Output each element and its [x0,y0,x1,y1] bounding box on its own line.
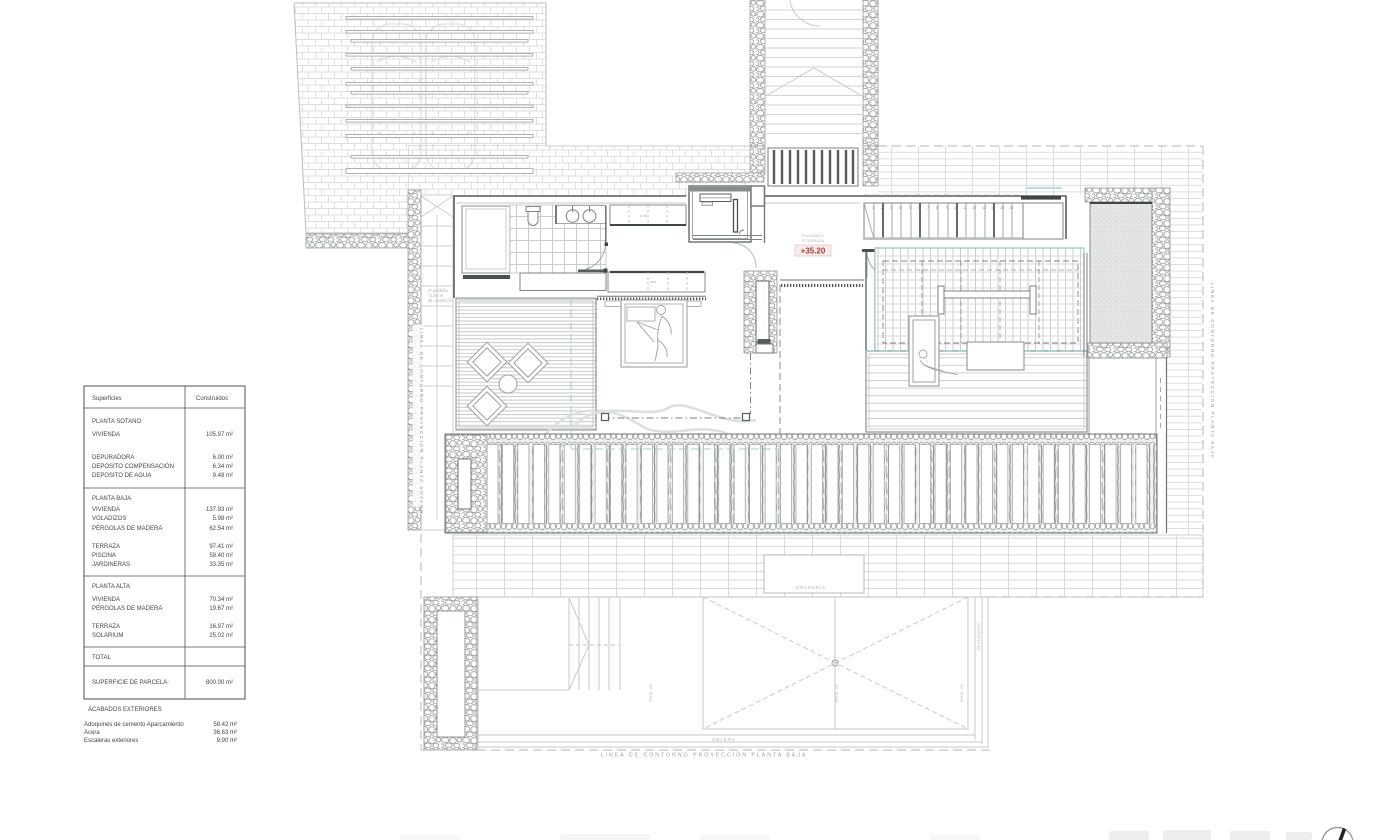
svg-text:LINEA DE CONTORNO PROYECCIÓN P: LINEA DE CONTORNO PROYECCIÓN PLANTA SOTA… [419,328,425,515]
svg-text:1: 1 [872,206,874,210]
svg-text:PÉRGOLAS DE MADERA: PÉRGOLAS DE MADERA [92,605,162,612]
svg-text:DEPURADORA: DEPURADORA [92,455,134,461]
svg-text:LINEA DE CONTORNO PROYECCIÓN P: LINEA DE CONTORNO PROYECCIÓN PLANTA BAJA [601,752,808,759]
svg-text:6.34 m²: 6.34 m² [213,464,233,470]
svg-text:PÉRGOLAS DE MADERA: PÉRGOLAS DE MADERA [92,525,162,532]
svg-text:Acera: Acera [84,730,100,736]
svg-text:9.90 m²: 9.90 m² [217,738,237,744]
svg-text:JARDINERAS: JARDINERAS [92,562,130,568]
svg-text:11: 11 [963,206,967,210]
svg-text:arm.: arm. [650,280,657,284]
svg-text:+35.20: +35.20 [801,247,826,256]
svg-text:VIVIENDA: VIVIENDA [92,432,120,438]
svg-text:VOLADIZOS: VOLADIZOS [92,516,126,522]
svg-text:5.98 m²: 5.98 m² [213,516,233,522]
svg-text:33.35 m²: 33.35 m² [209,562,233,568]
svg-text:RETRANQUEO: RETRANQUEO [977,623,981,650]
svg-text:137.93 m²: 137.93 m² [206,507,233,513]
svg-text:S.TERRAZA: S.TERRAZA [802,238,824,243]
svg-text:19.67 m²: 19.67 m² [209,606,233,612]
svg-text:Superficies: Superficies [92,396,122,402]
svg-text:105.97 m²: 105.97 m² [206,432,233,438]
svg-text:alt. 11x23 cm: alt. 11x23 cm [428,298,453,303]
svg-text:97.41 m²: 97.41 m² [209,544,233,550]
svg-text:36.63 m²: 36.63 m² [213,730,237,736]
svg-text:59.40 m²: 59.40 m² [209,553,233,559]
svg-text:TERRAZA: TERRAZA [92,624,120,630]
svg-text:VIVIENDA: VIVIENDA [92,597,120,603]
svg-text:a.90: a.90 [640,214,647,218]
svg-text:DEPOSITO DE AGUA: DEPOSITO DE AGUA [92,473,151,479]
svg-text:PISCINA: PISCINA [92,553,116,559]
svg-text:58.42 m²: 58.42 m² [213,722,237,728]
svg-text:TOTAL: TOTAL [92,655,111,661]
svg-text:PLANTA ALTA: PLANTA ALTA [92,584,130,590]
svg-text:7: 7 [927,206,929,210]
svg-text:PLANTA BAJA: PLANTA BAJA [92,496,131,502]
svg-text:4: 4 [899,206,901,210]
svg-text:9.48 m²: 9.48 m² [213,473,233,479]
svg-text:Adoquines de cemento Aparcamie: Adoquines de cemento Aparcamiento [84,722,184,728]
svg-text:12: 12 [972,206,976,210]
svg-text:62.54 m²: 62.54 m² [209,526,233,532]
svg-text:TERRAZA: TERRAZA [92,544,120,550]
svg-text:8: 8 [936,206,938,210]
svg-text:14: 14 [991,206,995,210]
svg-text:VIVIENDA: VIVIENDA [92,507,120,513]
svg-text:70.34 m²: 70.34 m² [209,597,233,603]
svg-text:SOLARIUM: SOLARIUM [92,633,123,639]
svg-text:DEPOSITO COMPENSACIÓN: DEPOSITO COMPENSACIÓN [92,463,174,470]
svg-text:Escaleras exteriores: Escaleras exteriores [84,738,138,744]
svg-text:LINEA DE CONTORNO PROYECCIÓN P: LINEA DE CONTORNO PROYECCIÓN PLANTA BAJA [1210,283,1216,459]
svg-text:13: 13 [982,206,986,210]
svg-text:16.97 m²: 16.97 m² [209,624,233,630]
svg-text:15: 15 [1000,206,1004,210]
svg-text:Construidos: Construidos [196,396,228,402]
svg-text:6: 6 [918,206,920,210]
svg-text:3: 3 [890,206,892,210]
svg-text:PLANTA SOTANO: PLANTA SOTANO [92,419,141,425]
svg-text:PEND. 2%: PEND. 2% [649,683,653,702]
svg-text:5: 5 [909,206,911,210]
svg-text:GRADERIA: GRADERIA [796,585,826,590]
svg-text:16: 16 [1009,206,1013,210]
svg-text:25.02 m²: 25.02 m² [209,633,233,639]
svg-text:6.00 m²: 6.00 m² [213,455,233,461]
svg-text:2: 2 [881,206,883,210]
svg-text:SUPERFICIE DE PARCELA:: SUPERFICIE DE PARCELA: [92,680,169,686]
svg-text:ACABADOS EXTERIORES: ACABADOS EXTERIORES [88,707,162,713]
svg-text:PEND. 2%: PEND. 2% [960,683,964,702]
svg-text:9: 9 [946,206,948,210]
svg-text:800.00 m²: 800.00 m² [206,680,233,686]
svg-text:PEND. 2%: PEND. 2% [835,683,839,702]
svg-text:10: 10 [954,206,958,210]
svg-text:SOLERA: SOLERA [712,737,736,742]
